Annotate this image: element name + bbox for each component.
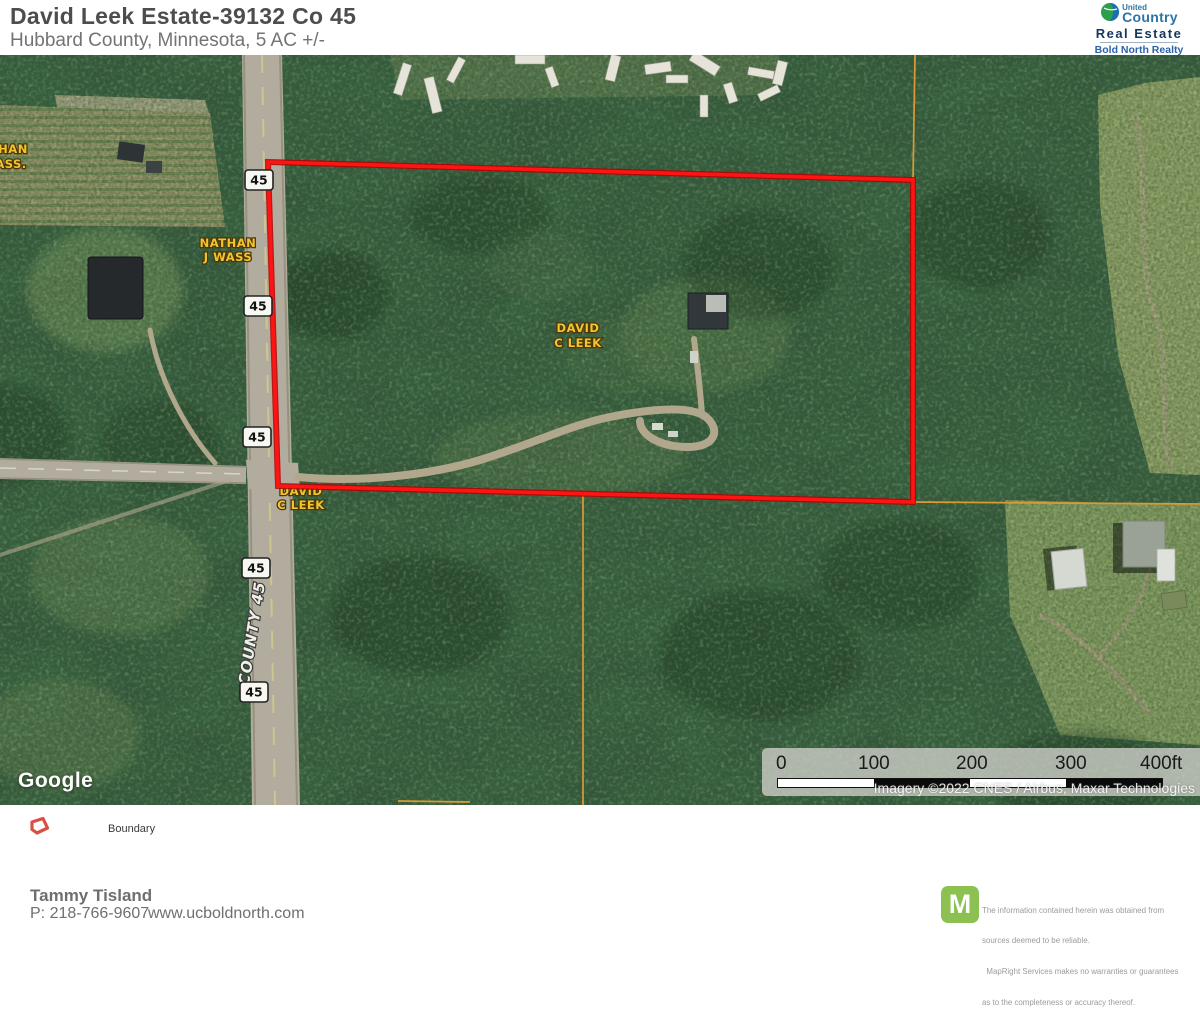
scale-bar: 0 100 200 300 400ft Imagery ©2022 CNES /… bbox=[762, 748, 1200, 796]
legend: Boundary bbox=[28, 816, 155, 841]
brand-division: Real Estate bbox=[1086, 27, 1192, 41]
google-logo: Google bbox=[18, 769, 93, 793]
svg-text:45: 45 bbox=[248, 430, 265, 445]
satellite-map[interactable]: DAVID C LEEK NATHAN J WASS HAN ASS. DAVI… bbox=[0, 55, 1200, 805]
route-shield-45: 45 bbox=[244, 296, 272, 316]
svg-text:45: 45 bbox=[247, 561, 264, 576]
globe-icon bbox=[1100, 2, 1120, 27]
svg-text:45: 45 bbox=[245, 685, 262, 700]
owner-label-nathan-line2: J WASS bbox=[203, 250, 252, 264]
disclaimer-line: The information contained herein was obt… bbox=[982, 906, 1178, 916]
website-link[interactable]: www.ucboldnorth.com bbox=[148, 905, 305, 923]
owner-label-edge-line2: ASS. bbox=[0, 157, 27, 171]
mapright-logo: M bbox=[941, 886, 979, 923]
brand-name: United Country bbox=[1122, 4, 1178, 25]
disclaimer-line: MapRight Services makes no warranties or… bbox=[982, 967, 1178, 977]
disclaimer-line: as to the completeness or accuracy there… bbox=[982, 998, 1178, 1008]
route-shield-45: 45 bbox=[240, 682, 268, 702]
scale-tick-300: 300 bbox=[1055, 753, 1087, 775]
svg-text:C LEEK: C LEEK bbox=[277, 498, 325, 512]
boundary-legend-label: Boundary bbox=[108, 823, 155, 835]
logo-divider bbox=[1100, 42, 1178, 43]
scale-tick-400: 400ft bbox=[1140, 753, 1182, 775]
svg-text:45: 45 bbox=[249, 299, 266, 314]
scale-tick-100: 100 bbox=[858, 753, 890, 775]
agent-phone: P: 218-766-9607 bbox=[30, 905, 149, 923]
owner-label-center-line1: DAVID bbox=[557, 321, 600, 335]
owner-label-edge-line1: HAN bbox=[0, 142, 28, 156]
route-shield-45: 45 bbox=[243, 427, 271, 447]
agent-name: Tammy Tisland bbox=[30, 886, 152, 906]
page-subtitle: Hubbard County, Minnesota, 5 AC +/- bbox=[10, 30, 325, 52]
scale-tick-200: 200 bbox=[956, 753, 988, 775]
route-shield-45: 45 bbox=[245, 170, 273, 190]
brand-country: Country bbox=[1122, 10, 1178, 25]
owner-label-nathan-line1: NATHAN bbox=[200, 236, 257, 250]
route-shield-45: 45 bbox=[242, 558, 270, 578]
scale-ticks: 0 100 200 300 400ft bbox=[762, 753, 1200, 775]
disclaimer-line: sources deemed to be reliable. bbox=[982, 936, 1178, 946]
scale-tick-0: 0 bbox=[776, 753, 787, 775]
owner-label-center-line2: C LEEK bbox=[554, 336, 602, 350]
map-canvas: DAVID C LEEK NATHAN J WASS HAN ASS. DAVI… bbox=[0, 55, 1200, 805]
imagery-attribution: Imagery ©2022 CNES / Airbus, Maxar Techn… bbox=[874, 780, 1195, 796]
disclaimer-text: The information contained herein was obt… bbox=[982, 885, 1178, 1019]
svg-text:45: 45 bbox=[250, 173, 267, 188]
boundary-legend-icon bbox=[28, 816, 50, 841]
page-title: David Leek Estate-39132 Co 45 bbox=[10, 3, 356, 30]
mapright-logo-letter: M bbox=[949, 889, 972, 920]
